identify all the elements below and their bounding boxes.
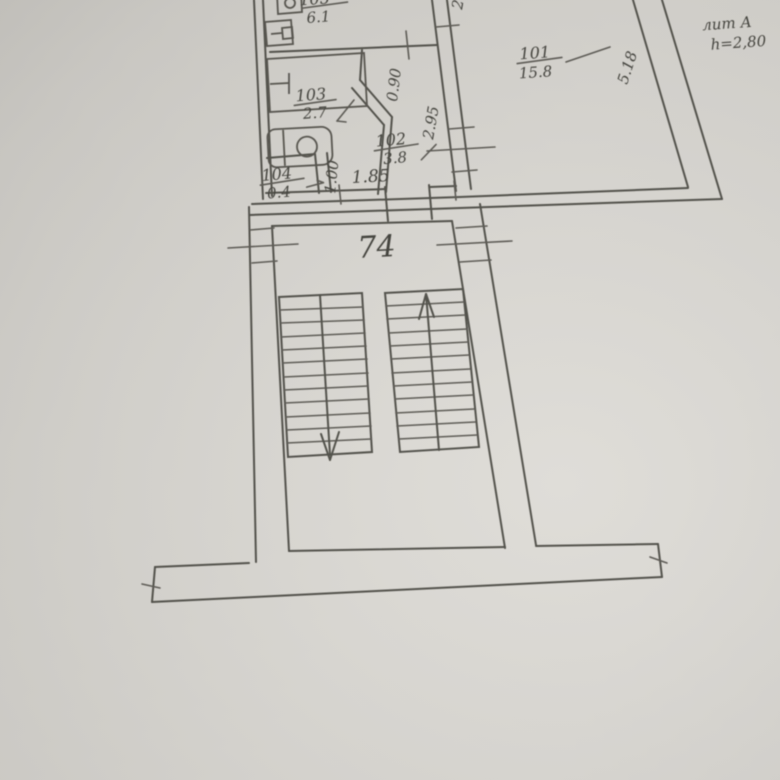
room-102-number: 102	[375, 129, 407, 151]
window-symbol-right	[437, 226, 512, 262]
window-symbol-left	[228, 228, 298, 263]
room-104-number: 104	[261, 163, 293, 185]
break-mark-right	[650, 557, 667, 563]
dimension-entrance: 1.85	[351, 166, 390, 188]
ceiling-height-label: h=2,80	[710, 32, 767, 54]
stair-flight-up	[385, 289, 479, 452]
dimension-closet: 1.00	[321, 159, 342, 195]
stair-landing-label: 74	[357, 229, 397, 266]
sink-symbol	[277, 0, 302, 14]
leader-line-101	[566, 47, 610, 62]
room-101-area: 15.8	[518, 62, 553, 82]
room-105-label: 105 6.1	[299, 0, 349, 27]
room-101-label: 101 15.8	[516, 42, 564, 83]
dimension-top-partial: 2	[448, 0, 468, 12]
stair-flight-down	[279, 293, 372, 460]
floor-plan-photo: 105 6.1 103 2.7 102 3.8 104 0.4 101 15.8	[0, 0, 780, 780]
toilet-symbol	[267, 126, 333, 167]
dimension-bath-door: 0.90	[383, 67, 405, 103]
room-102-area: 3.8	[382, 148, 407, 168]
room-103-area: 2.7	[301, 103, 328, 123]
dimension-corridor: 2.95	[419, 105, 443, 142]
room-103-label: 103 2.7	[293, 84, 337, 124]
room-104-area: 0.4	[266, 183, 291, 203]
room-105-area: 6.1	[306, 7, 331, 27]
bottom-wall-band	[142, 544, 667, 602]
floor-plan-drawing: 105 6.1 103 2.7 102 3.8 104 0.4 101 15.8	[0, 0, 780, 780]
title-block: лит А h=2,80	[702, 12, 768, 54]
basin-symbol	[265, 20, 293, 46]
dimension-room101-side: 5.18	[614, 49, 641, 86]
building-letter-label: лит А	[702, 13, 753, 34]
break-mark-left	[142, 584, 160, 588]
